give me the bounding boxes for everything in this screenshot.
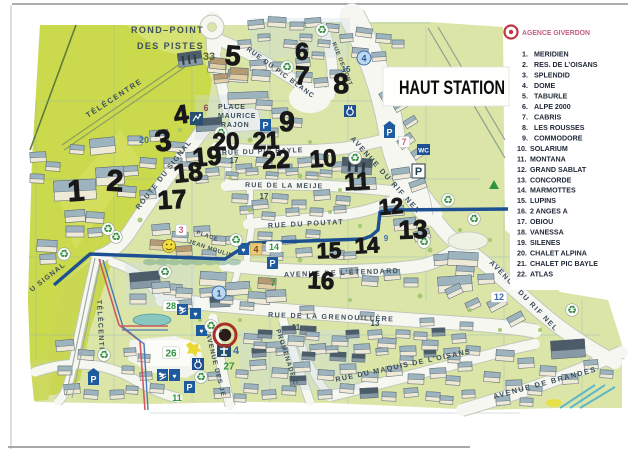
svg-text:18.: 18. [517,229,527,237]
svg-text:SOLARIUM: SOLARIUM [530,145,568,153]
svg-text:20: 20 [139,135,149,145]
svg-text:12: 12 [494,292,504,302]
svg-text:9: 9 [278,106,295,138]
svg-text:21.: 21. [517,260,527,268]
svg-text:DOME: DOME [534,82,556,90]
svg-text:MERIDIEN: MERIDIEN [534,51,569,59]
svg-text:P: P [90,374,96,384]
svg-text:20: 20 [212,128,240,156]
svg-text:17.: 17. [517,218,527,226]
svg-text:CONCORDE: CONCORDE [530,176,572,184]
svg-text:20.: 20. [517,250,527,258]
svg-text:P: P [386,127,392,137]
svg-text:2: 2 [106,164,124,198]
svg-text:CHALET PIC BAYLE: CHALET PIC BAYLE [530,260,598,268]
svg-text:⛷: ⛷ [178,306,187,315]
svg-text:PLACE: PLACE [218,104,246,111]
svg-text:27: 27 [223,362,235,373]
svg-text:LUPINS: LUPINS [530,197,556,205]
svg-text:5: 5 [224,39,242,71]
svg-text:7: 7 [270,278,275,288]
svg-text:28: 28 [166,301,176,311]
svg-text:♻: ♻ [59,249,69,261]
svg-text:SPLENDID: SPLENDID [534,72,570,80]
svg-text:14.: 14. [517,187,527,195]
svg-text:♥: ♥ [199,329,203,336]
svg-text:♻: ♻ [103,224,113,236]
svg-text:ATLAS: ATLAS [530,271,553,279]
svg-text:CABRIS: CABRIS [534,113,561,121]
svg-text:19.: 19. [517,239,527,247]
svg-text:ROND–POINT: ROND–POINT [131,25,204,35]
svg-text:♻: ♻ [350,153,360,165]
svg-text:17: 17 [157,184,187,215]
svg-text:♻: ♻ [469,214,479,226]
svg-text:AGENCE GIVERDON: AGENCE GIVERDON [522,30,590,37]
svg-text:♻: ♻ [160,267,170,279]
svg-text:LES ROUSSES: LES ROUSSES [534,124,585,132]
svg-text:P: P [415,166,422,178]
svg-text:♥: ♥ [193,312,197,319]
svg-text:♻: ♻ [317,25,327,37]
svg-text:4: 4 [253,245,258,255]
svg-text:16: 16 [307,267,335,295]
svg-text:33: 33 [203,51,215,63]
svg-text:P: P [269,258,275,268]
svg-text:RUE DE LA MEIJE: RUE DE LA MEIJE [245,182,324,190]
svg-text:15.: 15. [517,197,527,205]
svg-text:7.: 7. [522,113,528,121]
svg-text:12.: 12. [517,166,527,174]
svg-text:1: 1 [216,289,221,299]
svg-text:VANESSA: VANESSA [530,229,564,237]
svg-text:9.: 9. [522,134,528,142]
svg-text:1: 1 [67,174,86,208]
svg-text:17: 17 [260,192,269,201]
svg-text:5.: 5. [522,92,528,100]
svg-text:3: 3 [178,225,183,235]
svg-text:22.: 22. [517,271,527,279]
svg-text:13.: 13. [517,176,527,184]
svg-text:⛷: ⛷ [158,371,167,380]
svg-text:6.: 6. [522,103,528,111]
svg-text:♥: ♥ [241,247,245,254]
svg-text:♻: ♻ [99,350,109,362]
svg-text:2.: 2. [522,61,528,69]
svg-text:14: 14 [269,242,279,252]
svg-text:8.: 8. [522,124,528,132]
svg-text:RES. DE L’OISANS: RES. DE L’OISANS [534,61,598,69]
svg-text:4: 4 [233,345,240,357]
svg-text:P: P [186,382,192,392]
svg-text:11.: 11. [517,155,526,163]
svg-text:♻: ♻ [196,372,206,384]
svg-text:14: 14 [354,232,381,258]
svg-text:11: 11 [344,168,371,196]
svg-text:11: 11 [172,393,182,403]
svg-text:26: 26 [165,349,177,360]
svg-text:WC: WC [418,148,429,155]
svg-text:HAUT STATION: HAUT STATION [399,78,505,99]
svg-text:4: 4 [361,54,366,64]
svg-text:7: 7 [401,137,406,147]
svg-text:3.: 3. [522,72,528,80]
svg-text:GRAND SABLAT: GRAND SABLAT [530,166,587,174]
svg-text:4.: 4. [522,82,528,90]
svg-text:7: 7 [294,60,311,91]
svg-text:♻: ♻ [282,62,292,74]
svg-text:♻: ♻ [443,195,453,207]
svg-text:♻: ♻ [231,235,241,247]
svg-text:ALPE 2000: ALPE 2000 [534,103,571,111]
svg-text:OBIOU: OBIOU [530,218,553,226]
svg-text:11: 11 [292,323,301,332]
svg-text:SILENES: SILENES [530,239,561,247]
svg-text:♥: ♥ [172,373,176,380]
svg-text:22: 22 [261,145,290,174]
svg-text:15: 15 [316,238,341,264]
svg-text:MARMOTTES: MARMOTTES [530,187,576,195]
svg-text:10.: 10. [517,145,527,153]
svg-text:13: 13 [371,319,380,328]
svg-text:1.: 1. [522,51,528,59]
svg-text:DES PISTES: DES PISTES [137,41,204,51]
svg-text:9: 9 [384,234,389,243]
svg-text:COMMODORE: COMMODORE [534,134,583,142]
svg-text:♻: ♻ [567,305,577,317]
svg-text:TABURLE: TABURLE [534,92,568,100]
svg-text:13: 13 [398,214,428,245]
svg-text:CHALET ALPINA: CHALET ALPINA [530,250,587,258]
svg-text:16.: 16. [517,208,527,216]
svg-text:MAURICE: MAURICE [218,113,256,120]
svg-text:6: 6 [203,103,208,113]
svg-text:8: 8 [332,68,349,100]
svg-text:3: 3 [153,124,173,159]
svg-text:17: 17 [230,156,239,165]
svg-text:10: 10 [309,145,338,174]
svg-text:2 ANGES A: 2 ANGES A [530,208,568,216]
svg-text:MONTANA: MONTANA [530,155,566,163]
